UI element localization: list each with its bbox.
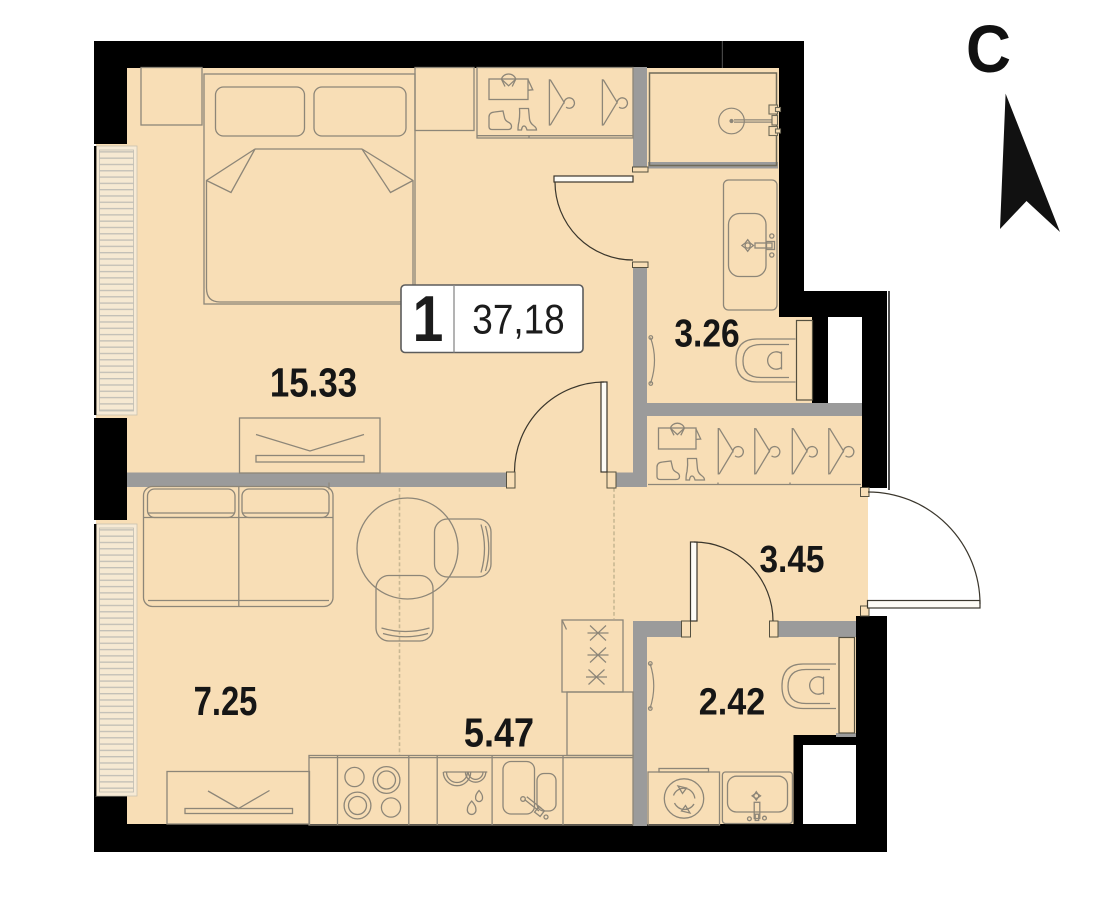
svg-text:С: С xyxy=(966,11,1011,87)
svg-text:3.45: 3.45 xyxy=(759,538,824,580)
svg-text:7.25: 7.25 xyxy=(194,677,258,723)
svg-text:3.26: 3.26 xyxy=(674,311,739,355)
svg-text:15.33: 15.33 xyxy=(270,361,357,406)
svg-text:5.47: 5.47 xyxy=(464,710,534,756)
svg-text:1: 1 xyxy=(413,282,444,355)
svg-text:37,18: 37,18 xyxy=(472,296,564,343)
svg-text:2.42: 2.42 xyxy=(699,680,766,723)
